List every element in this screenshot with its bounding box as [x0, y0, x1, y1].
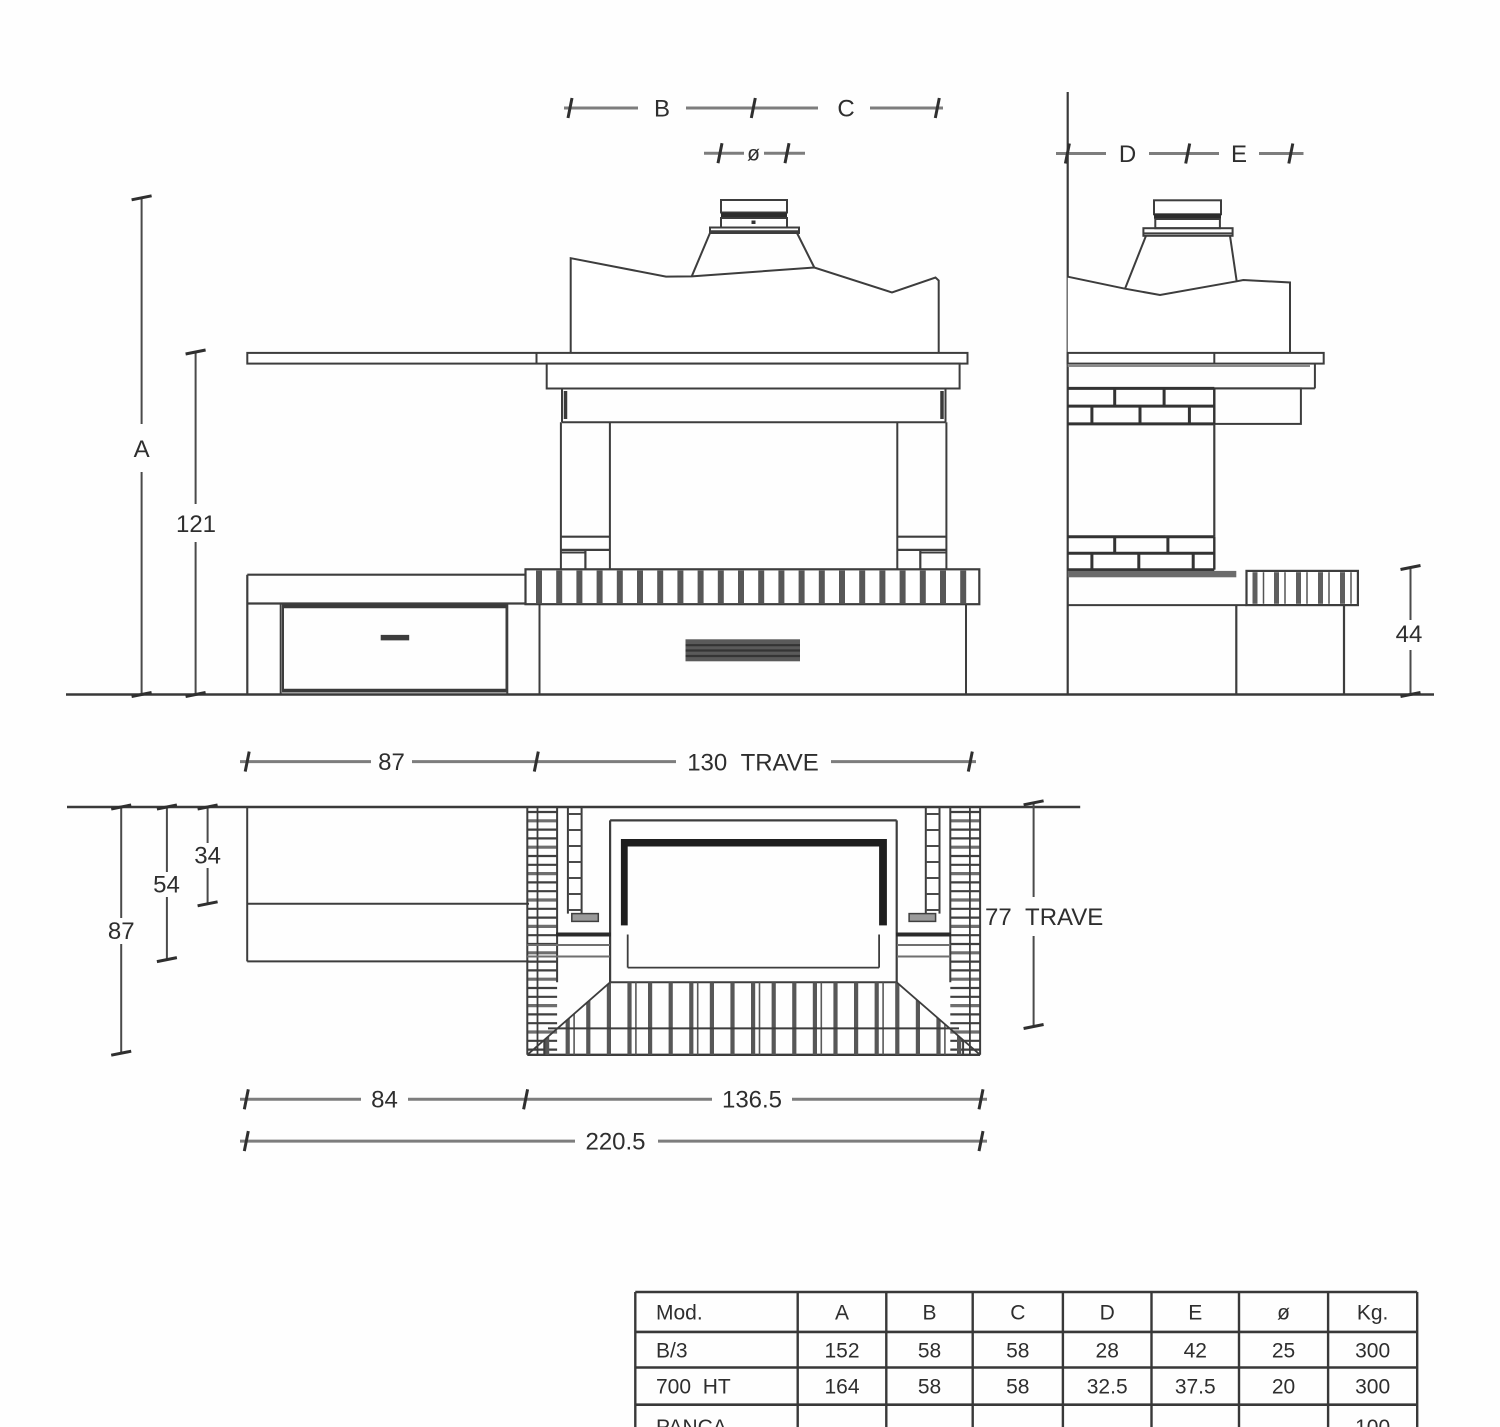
- svg-text:20: 20: [1272, 1376, 1295, 1399]
- svg-text:C: C: [837, 96, 854, 123]
- svg-text:58: 58: [918, 1376, 941, 1399]
- svg-text:PANCA: PANCA: [656, 1416, 727, 1427]
- svg-text:164: 164: [824, 1376, 859, 1399]
- svg-text:130 TRAVE: 130 TRAVE: [687, 750, 819, 777]
- svg-text:25: 25: [1272, 1340, 1295, 1363]
- svg-text:152: 152: [824, 1340, 859, 1363]
- svg-text:58: 58: [1006, 1376, 1029, 1399]
- svg-text:300: 300: [1355, 1340, 1390, 1363]
- svg-text:100: 100: [1355, 1416, 1390, 1427]
- svg-text:B: B: [922, 1302, 936, 1325]
- svg-text:700 HT: 700 HT: [656, 1376, 731, 1399]
- svg-text:28: 28: [1096, 1340, 1119, 1363]
- svg-text:58: 58: [918, 1340, 941, 1363]
- svg-text:B/3: B/3: [656, 1340, 688, 1363]
- svg-text:42: 42: [1184, 1340, 1207, 1363]
- svg-text:300: 300: [1355, 1376, 1390, 1399]
- svg-text:ø: ø: [747, 143, 760, 166]
- svg-text:77 TRAVE: 77 TRAVE: [985, 904, 1103, 931]
- svg-text:E: E: [1231, 141, 1247, 168]
- svg-text:121: 121: [176, 511, 216, 538]
- svg-text:Mod.: Mod.: [656, 1302, 703, 1325]
- svg-text:136.5: 136.5: [722, 1087, 782, 1114]
- svg-text:44: 44: [1396, 621, 1423, 648]
- svg-text:ø: ø: [1277, 1302, 1290, 1325]
- svg-text:C: C: [1010, 1302, 1025, 1325]
- svg-text:34: 34: [194, 843, 221, 870]
- svg-text:32.5: 32.5: [1087, 1376, 1128, 1399]
- svg-text:54: 54: [153, 872, 180, 899]
- svg-text:Kg.: Kg.: [1357, 1302, 1389, 1325]
- svg-text:B: B: [654, 96, 670, 123]
- svg-text:84: 84: [371, 1087, 398, 1114]
- svg-text:220.5: 220.5: [585, 1129, 645, 1156]
- svg-text:D: D: [1100, 1302, 1115, 1325]
- svg-text:58: 58: [1006, 1340, 1029, 1363]
- svg-text:A: A: [835, 1302, 849, 1325]
- svg-text:87: 87: [108, 918, 135, 945]
- svg-text:A: A: [134, 436, 150, 463]
- svg-text:E: E: [1188, 1302, 1202, 1325]
- svg-text:37.5: 37.5: [1175, 1376, 1216, 1399]
- svg-text:87: 87: [378, 749, 405, 776]
- svg-text:D: D: [1119, 141, 1136, 168]
